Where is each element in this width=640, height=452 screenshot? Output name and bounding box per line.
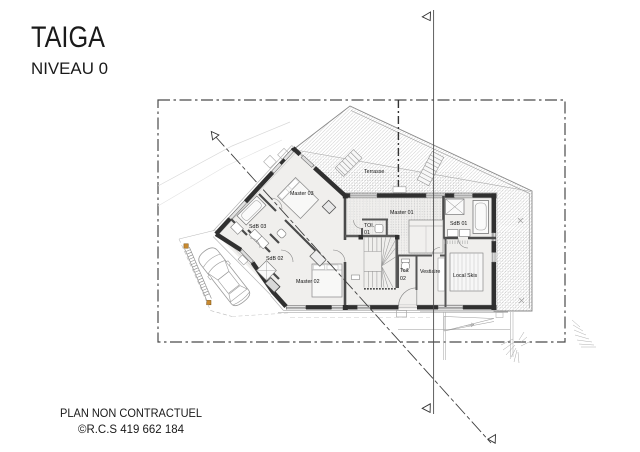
svg-text:SdB 02: SdB 02 [266,256,283,262]
svg-text:Master 02: Master 02 [296,279,320,285]
svg-text:01: 01 [364,230,370,236]
svg-text:SdB 01: SdB 01 [450,221,467,227]
svg-text:NIVEAU 0: NIVEAU 0 [31,60,108,78]
svg-text:©R.C.S 419 662 184: ©R.C.S 419 662 184 [78,423,185,436]
svg-text:Toil.: Toil. [400,268,409,274]
svg-text:TAIGA: TAIGA [31,21,105,54]
svg-text:Vestiaire: Vestiaire [420,269,440,275]
svg-text:02: 02 [400,276,406,282]
svg-text:Master 01: Master 01 [390,210,414,216]
svg-text:TOI.: TOI. [364,223,374,229]
svg-text:PLAN NON CONTRACTUEL: PLAN NON CONTRACTUEL [60,407,203,420]
svg-text:Master 03: Master 03 [290,191,314,197]
svg-text:SdB 03: SdB 03 [249,224,266,230]
svg-text:Terrasse: Terrasse [364,169,384,175]
svg-text:Local Skis: Local Skis [453,273,477,279]
